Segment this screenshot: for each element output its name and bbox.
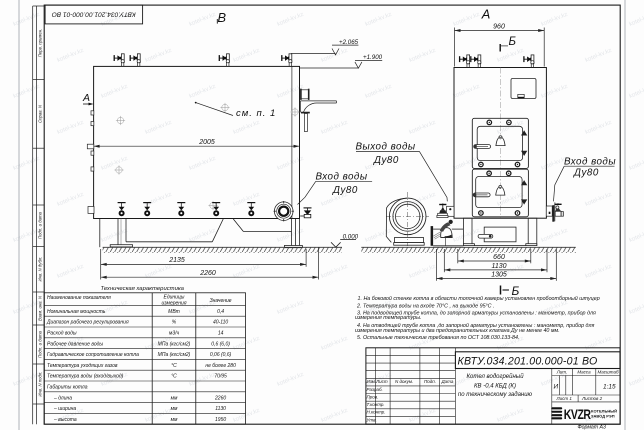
svg-text:kotel-kv.kz: kotel-kv.kz <box>145 120 173 136</box>
svg-text:Температура воды (вход/выход): Температура воды (вход/выход) <box>47 374 124 380</box>
svg-text:0,06 (0,6): 0,06 (0,6) <box>210 352 232 358</box>
svg-text:660: 660 <box>493 254 505 261</box>
svg-text:5. Остальные технические треб: 5. Остальные технические требования по О… <box>357 335 519 341</box>
svg-text:Диапазон рабочего регулировани: Диапазон рабочего регулирования <box>46 320 129 326</box>
svg-text:Наименование показателя: Наименование показателя <box>47 295 111 301</box>
svg-text:Подп.: Подп. <box>424 379 436 384</box>
svg-text:kotel-kv.kz: kotel-kv.kz <box>409 120 437 136</box>
svg-text:Подп. и дата: Подп. и дата <box>38 211 43 239</box>
svg-text:Масштаб: Масштаб <box>597 370 618 375</box>
svg-text:Утв.: Утв. <box>367 417 377 422</box>
svg-text:kotel-kv.kz: kotel-kv.kz <box>189 372 217 388</box>
svg-text:мм: мм <box>171 395 178 401</box>
svg-text:kotel-kv.kz: kotel-kv.kz <box>541 228 569 244</box>
svg-text:В: В <box>218 10 227 25</box>
svg-text:1:15: 1:15 <box>603 384 616 391</box>
svg-text:kotel-kv.kz: kotel-kv.kz <box>629 84 644 100</box>
svg-text:kotel-kv.kz: kotel-kv.kz <box>321 336 349 352</box>
svg-text:kotel-kv.kz: kotel-kv.kz <box>541 84 569 100</box>
svg-text:КВТУ.034.201.00.000-01 ВО: КВТУ.034.201.00.000-01 ВО <box>458 356 598 368</box>
svg-text:kotel-kv.kz: kotel-kv.kz <box>453 84 481 100</box>
svg-text:kotel-kv.kz: kotel-kv.kz <box>277 372 305 388</box>
svg-text:14: 14 <box>218 331 224 337</box>
svg-text:КВТУ.034.201.00.000-01 ВО: КВТУ.034.201.00.000-01 ВО <box>52 10 136 17</box>
svg-text:2. Температура воды на входе: 2. Температура воды на входе 70°С , на в… <box>356 304 495 310</box>
svg-text:И: И <box>554 384 559 391</box>
svg-text:Пров.: Пров. <box>367 394 379 399</box>
svg-text:Подп. и дата: Подп. и дата <box>38 330 43 358</box>
svg-text:kotel-kv.kz: kotel-kv.kz <box>585 264 613 280</box>
svg-text:Расход воды: Расход воды <box>47 331 77 337</box>
svg-text:kotel-kv.kz: kotel-kv.kz <box>453 12 481 28</box>
svg-text:измерения: измерения <box>161 301 186 307</box>
svg-text:2260: 2260 <box>199 270 216 277</box>
svg-text:мм: мм <box>171 417 178 423</box>
svg-text:kotel-kv.kz: kotel-kv.kz <box>145 192 173 208</box>
svg-text:м3/ч: м3/ч <box>169 331 180 337</box>
svg-text:Взам. инв. N: Взам. инв. N <box>38 295 43 321</box>
svg-text:МПа (кгс/см2): МПа (кгс/см2) <box>158 341 191 347</box>
svg-text:0,4: 0,4 <box>217 309 224 315</box>
svg-text:kotel-kv.kz: kotel-kv.kz <box>409 408 437 424</box>
svg-text:А: А <box>82 92 90 104</box>
svg-text:Инв. N подл.: Инв. N подл. <box>38 371 43 396</box>
svg-text:Перв. примен.: Перв. примен. <box>38 29 43 58</box>
svg-text:Номинальная мощность: Номинальная мощность <box>47 309 106 315</box>
svg-text:kotel-kv.kz: kotel-kv.kz <box>585 48 613 64</box>
svg-text:kotel-kv.kz: kotel-kv.kz <box>629 300 644 316</box>
svg-text:– высота: – высота <box>53 417 77 423</box>
svg-text:Техническая характеристика: Техническая характеристика <box>101 286 185 292</box>
svg-text:kotel-kv.kz: kotel-kv.kz <box>189 156 217 172</box>
svg-text:°С: °С <box>171 374 177 380</box>
svg-text:Листов 2: Листов 2 <box>581 396 603 401</box>
svg-text:по техническому заданию: по техническому заданию <box>458 392 533 398</box>
svg-text:40-110: 40-110 <box>213 320 228 326</box>
svg-text:Инв. N дубл.: Инв. N дубл. <box>38 257 43 282</box>
svg-text:kotel-kv.kz: kotel-kv.kz <box>453 228 481 244</box>
svg-text:kotel-kv.kz: kotel-kv.kz <box>541 12 569 28</box>
svg-text:kotel-kv.kz: kotel-kv.kz <box>365 228 393 244</box>
svg-text:2260: 2260 <box>214 395 226 401</box>
svg-text:0,6 (6,0): 0,6 (6,0) <box>211 341 230 347</box>
svg-text:Гидравлическое сопротивление к: Гидравлическое сопротивление котла <box>47 352 139 358</box>
svg-text:Изм.Лист: Изм.Лист <box>367 379 388 384</box>
svg-text:1130: 1130 <box>215 406 226 412</box>
svg-text:А: А <box>481 7 491 22</box>
svg-text:Масса: Масса <box>577 370 591 375</box>
svg-text:kotel-kv.kz: kotel-kv.kz <box>57 120 85 136</box>
svg-text:kotel-kv.kz: kotel-kv.kz <box>321 120 349 136</box>
svg-text:Ду80: Ду80 <box>373 155 399 166</box>
svg-text:kotel-kv.kz: kotel-kv.kz <box>409 264 437 280</box>
svg-text:Значение: Значение <box>210 298 232 304</box>
svg-text:kotel-kv.kz: kotel-kv.kz <box>233 408 261 424</box>
svg-text:kotel-kv.kz: kotel-kv.kz <box>189 12 217 28</box>
svg-text:kotel-kv.kz: kotel-kv.kz <box>277 156 305 172</box>
svg-text:kotel-kv.kz: kotel-kv.kz <box>409 48 437 64</box>
svg-text:kotel-kv.kz: kotel-kv.kz <box>101 228 129 244</box>
svg-text:Ду80: Ду80 <box>332 185 358 196</box>
svg-text:°С: °С <box>171 363 177 369</box>
svg-text:2005: 2005 <box>198 139 215 146</box>
svg-text:kotel-kv.kz: kotel-kv.kz <box>365 84 393 100</box>
svg-text:kotel-kv.kz: kotel-kv.kz <box>145 408 173 424</box>
svg-text:не более 280: не более 280 <box>205 363 236 369</box>
svg-text:Б: Б <box>509 36 517 48</box>
svg-text:мм: мм <box>171 406 178 412</box>
svg-text:kotel-kv.kz: kotel-kv.kz <box>233 48 261 64</box>
svg-text:N докум.: N докум. <box>395 379 413 384</box>
svg-text:kotel-kv.kz: kotel-kv.kz <box>585 192 613 208</box>
svg-text:МПа (кгс/см2): МПа (кгс/см2) <box>158 352 191 358</box>
svg-text:КВ -0,4 КБД (К): КВ -0,4 КБД (К) <box>474 383 516 389</box>
svg-text:KVZR: KVZR <box>564 407 591 423</box>
svg-text:kotel-kv.kz: kotel-kv.kz <box>57 192 85 208</box>
svg-text:– ширина: – ширина <box>53 406 76 412</box>
svg-text:+2.065: +2.065 <box>339 39 359 46</box>
svg-text:см. п. 1: см. п. 1 <box>236 108 276 119</box>
svg-text:kotel-kv.kz: kotel-kv.kz <box>233 336 261 352</box>
svg-text:Вход воды: Вход воды <box>564 156 616 167</box>
svg-text:kotel-kv.kz: kotel-kv.kz <box>629 228 644 244</box>
svg-text:Формат А3: Формат А3 <box>578 424 606 430</box>
svg-text:Вход воды: Вход воды <box>316 171 368 182</box>
svg-text:kotel-kv.kz: kotel-kv.kz <box>321 48 349 64</box>
svg-text:Выход воды: Выход воды <box>356 142 416 153</box>
svg-text:kotel-kv.kz: kotel-kv.kz <box>629 372 644 388</box>
svg-text:kotel-kv.kz: kotel-kv.kz <box>277 228 305 244</box>
svg-text:Справ. N: Справ. N <box>38 104 43 123</box>
svg-text:960: 960 <box>493 23 505 30</box>
svg-text:kotel-kv.kz: kotel-kv.kz <box>629 156 644 172</box>
svg-text:Лист 1: Лист 1 <box>556 396 573 401</box>
svg-text:kotel-kv.kz: kotel-kv.kz <box>365 12 393 28</box>
svg-text:kotel-kv.kz: kotel-kv.kz <box>101 156 129 172</box>
svg-text:1. На боковой стенке котла в: 1. На боковой стенке котла в области топ… <box>358 295 600 302</box>
svg-text:kotel-kv.kz: kotel-kv.kz <box>497 408 525 424</box>
svg-text:ЗАВОД РЭП: ЗАВОД РЭП <box>591 414 615 419</box>
svg-text:Лит.: Лит. <box>556 370 568 375</box>
svg-text:измерения температуры и два пр: измерения температуры и два предохраните… <box>355 328 560 334</box>
svg-text:Ду80: Ду80 <box>573 168 599 179</box>
svg-text:kotel-kv.kz: kotel-kv.kz <box>585 336 613 352</box>
svg-text:kotel-kv.kz: kotel-kv.kz <box>145 48 173 64</box>
svg-text:+1.900: +1.900 <box>363 54 383 61</box>
svg-text:2135: 2135 <box>168 257 185 264</box>
svg-text:– длина: – длина <box>53 395 72 401</box>
svg-text:kotel-kv.kz: kotel-kv.kz <box>57 48 85 64</box>
svg-text:1950: 1950 <box>215 417 226 423</box>
svg-text:70/95: 70/95 <box>214 374 227 380</box>
svg-text:%: % <box>172 320 177 326</box>
svg-text:kotel-kv.kz: kotel-kv.kz <box>321 408 349 424</box>
svg-text:1305: 1305 <box>491 272 507 279</box>
svg-text:0.000: 0.000 <box>343 233 359 240</box>
svg-text:kotel-kv.kz: kotel-kv.kz <box>57 264 85 280</box>
svg-text:Габариты котла: Габариты котла <box>47 385 88 391</box>
svg-text:МВт: МВт <box>168 309 180 315</box>
svg-text:kotel-kv.kz: kotel-kv.kz <box>189 84 217 100</box>
svg-text:Рабочее давление воды: Рабочее давление воды <box>47 341 103 347</box>
svg-text:kotel-kv.kz: kotel-kv.kz <box>629 12 644 28</box>
svg-text:Дата: Дата <box>441 379 454 384</box>
svg-text:kotel-kv.kz: kotel-kv.kz <box>233 192 261 208</box>
svg-text:Температура уходящих газов: Температура уходящих газов <box>47 363 118 369</box>
svg-text:kotel-kv.kz: kotel-kv.kz <box>101 84 129 100</box>
svg-text:Н.контр.: Н.контр. <box>367 410 386 415</box>
svg-text:kotel-kv.kz: kotel-kv.kz <box>233 120 261 136</box>
svg-text:kotel-kv.kz: kotel-kv.kz <box>277 300 305 316</box>
svg-text:kotel-kv.kz: kotel-kv.kz <box>321 264 349 280</box>
svg-text:kotel-kv.kz: kotel-kv.kz <box>585 120 613 136</box>
svg-text:1130: 1130 <box>491 263 506 270</box>
svg-text:Котел водогрейный: Котел водогрейный <box>466 373 524 380</box>
svg-text:kotel-kv.kz: kotel-kv.kz <box>277 12 305 28</box>
svg-text:измерения температуры.: измерения температуры. <box>355 315 422 321</box>
svg-text:Разраб.: Разраб. <box>367 387 383 392</box>
svg-text:Т.контр.: Т.контр. <box>367 402 385 407</box>
